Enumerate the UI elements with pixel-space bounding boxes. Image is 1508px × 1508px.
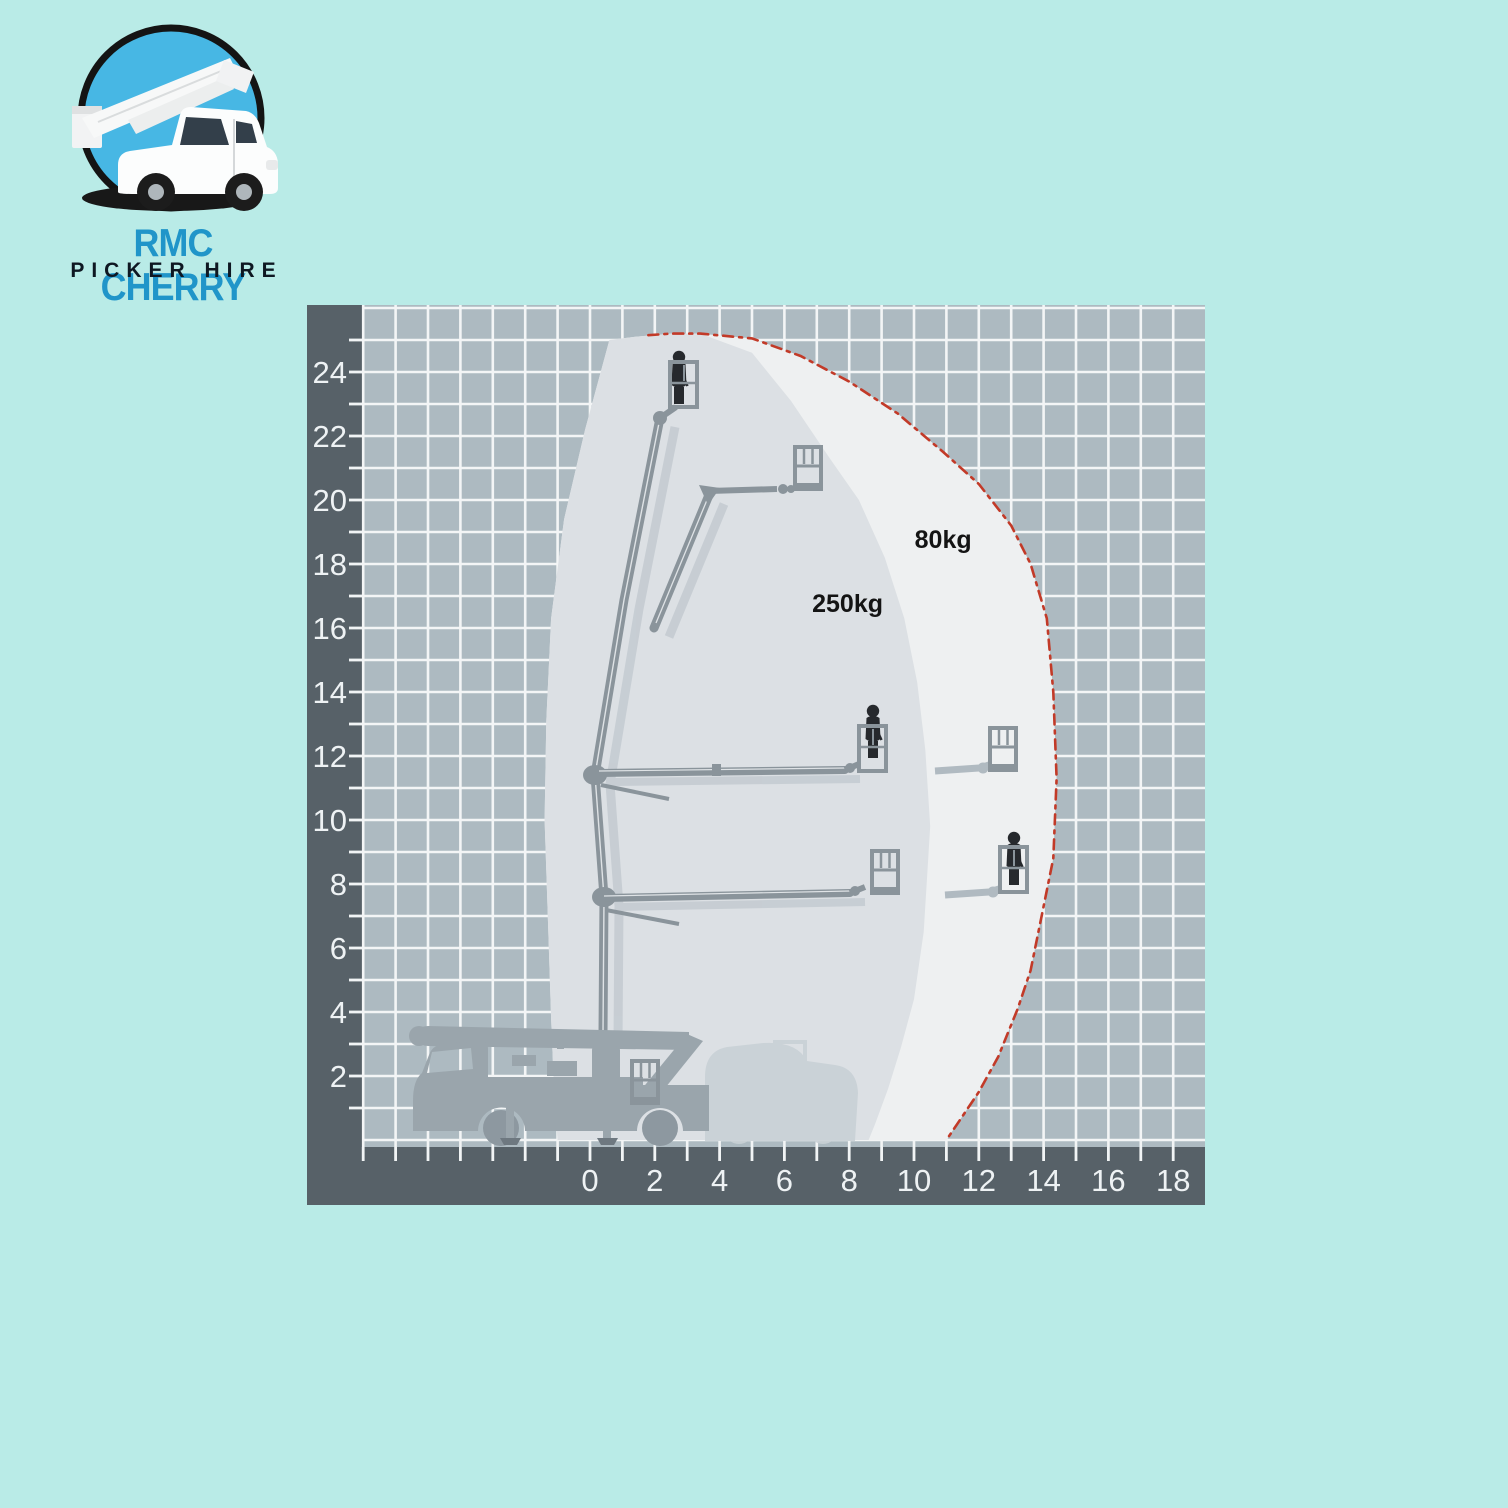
y-tick-label: 10 bbox=[313, 803, 347, 838]
x-tick-label: 10 bbox=[897, 1163, 931, 1198]
y-tick-label: 14 bbox=[313, 675, 347, 710]
x-tick-label: 14 bbox=[1026, 1163, 1060, 1198]
truck-wheel bbox=[642, 1110, 678, 1146]
windshield bbox=[180, 117, 229, 145]
reach-diagram: 02468101214161824681012141618202224 80kg… bbox=[307, 305, 1205, 1205]
outrigger bbox=[603, 1091, 611, 1138]
x-tick-label: 16 bbox=[1091, 1163, 1125, 1198]
reach-diagram-svg: 02468101214161824681012141618202224 80kg… bbox=[307, 305, 1205, 1205]
y-tick-label: 12 bbox=[313, 739, 347, 774]
x-tick-label: 8 bbox=[841, 1163, 858, 1198]
y-tick-label: 18 bbox=[313, 547, 347, 582]
x-tick-label: 0 bbox=[581, 1163, 598, 1198]
x-tick-label: 4 bbox=[711, 1163, 728, 1198]
y-tick-label: 24 bbox=[313, 355, 347, 390]
y-tick-label: 16 bbox=[313, 611, 347, 646]
truck-silhouette bbox=[409, 1026, 709, 1146]
load-label-250kg: 250kg bbox=[812, 590, 883, 618]
y-tick-label: 22 bbox=[313, 419, 347, 454]
y-tick-label: 20 bbox=[313, 483, 347, 518]
x-tick-label: 2 bbox=[646, 1163, 663, 1198]
logo-subtitle: PICKER HIRE bbox=[48, 259, 298, 283]
y-tick-label: 6 bbox=[330, 931, 347, 966]
y-tick-label: 8 bbox=[330, 867, 347, 902]
x-tick-label: 12 bbox=[962, 1163, 996, 1198]
x-tick-label: 6 bbox=[776, 1163, 793, 1198]
outrigger bbox=[506, 1091, 514, 1138]
logo: RMC CHERRY PICKER HIRE bbox=[58, 22, 288, 287]
y-tick-label: 4 bbox=[330, 995, 347, 1030]
x-tick-label: 18 bbox=[1156, 1163, 1190, 1198]
logo-badge bbox=[58, 22, 288, 227]
load-label-80kg: 80kg bbox=[915, 526, 972, 554]
page-background: RMC CHERRY PICKER HIRE bbox=[0, 0, 1508, 1508]
y-tick-label: 2 bbox=[330, 1059, 347, 1094]
